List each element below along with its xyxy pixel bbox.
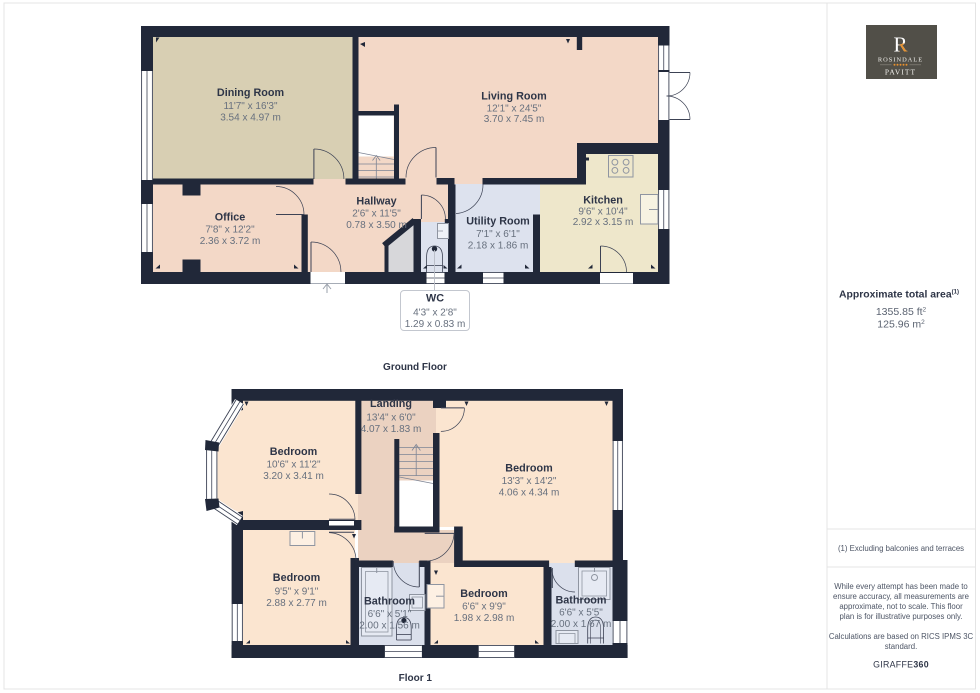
svg-text:3.70 x 7.45 m: 3.70 x 7.45 m bbox=[484, 114, 545, 125]
svg-text:Floor 1: Floor 1 bbox=[399, 673, 433, 684]
svg-text:13'3" x 14'2": 13'3" x 14'2" bbox=[502, 476, 557, 487]
svg-text:6'6" x 5'5": 6'6" x 5'5" bbox=[559, 608, 603, 619]
svg-text:Living Room: Living Room bbox=[481, 91, 546, 103]
svg-text:Office: Office bbox=[215, 212, 246, 224]
svg-text:approximate, not to scale. Thi: approximate, not to scale. This floor bbox=[839, 602, 963, 611]
svg-text:ensure accuracy, all measureme: ensure accuracy, all measurements are bbox=[833, 592, 969, 601]
svg-text:1355.85 ft2: 1355.85 ft2 bbox=[876, 306, 927, 318]
svg-text:2.00 x 1.56 m: 2.00 x 1.56 m bbox=[359, 621, 420, 632]
svg-text:11'7" x 16'3": 11'7" x 16'3" bbox=[223, 101, 278, 112]
svg-text:13'4" x 6'0": 13'4" x 6'0" bbox=[366, 413, 416, 424]
svg-text:WC: WC bbox=[426, 293, 444, 305]
svg-text:Bedroom: Bedroom bbox=[270, 446, 317, 458]
svg-text:Approximate total area(1): Approximate total area(1) bbox=[839, 290, 959, 301]
svg-text:Ground Floor: Ground Floor bbox=[383, 362, 447, 373]
svg-text:9'6" x 10'4": 9'6" x 10'4" bbox=[578, 207, 628, 218]
svg-text:Landing: Landing bbox=[370, 398, 412, 410]
svg-text:2.36 x 3.72 m: 2.36 x 3.72 m bbox=[200, 236, 261, 247]
svg-text:Kitchen: Kitchen bbox=[583, 195, 623, 207]
svg-text:Bedroom: Bedroom bbox=[460, 588, 507, 600]
svg-text:ROSINDALE: ROSINDALE bbox=[878, 57, 923, 64]
svg-text:3.20 x 3.41 m: 3.20 x 3.41 m bbox=[263, 471, 324, 482]
svg-text:Bathroom: Bathroom bbox=[364, 596, 415, 608]
svg-text:7'1" x 6'1": 7'1" x 6'1" bbox=[476, 229, 520, 240]
svg-text:Bedroom: Bedroom bbox=[273, 572, 320, 584]
svg-text:Hallway: Hallway bbox=[356, 196, 396, 208]
svg-text:Utility Room: Utility Room bbox=[466, 216, 530, 228]
svg-text:plan is for illustrative purpo: plan is for illustrative purposes only. bbox=[840, 612, 963, 621]
svg-text:Bedroom: Bedroom bbox=[505, 463, 552, 475]
svg-text:0.78 x 3.50 m: 0.78 x 3.50 m bbox=[346, 220, 407, 231]
svg-text:10'6" x 11'2": 10'6" x 11'2" bbox=[266, 460, 321, 471]
svg-text:Bathroom: Bathroom bbox=[556, 595, 607, 607]
svg-text:6'6" x 9'9": 6'6" x 9'9" bbox=[462, 602, 506, 613]
svg-text:Calculations are based on RICS: Calculations are based on RICS IPMS 3C bbox=[829, 632, 974, 641]
svg-text:4'3" x 2'8": 4'3" x 2'8" bbox=[413, 308, 457, 319]
svg-text:1.29 x 0.83 m: 1.29 x 0.83 m bbox=[405, 319, 466, 330]
svg-text:PAVITT: PAVITT bbox=[885, 68, 916, 77]
svg-text:2.88 x 2.77 m: 2.88 x 2.77 m bbox=[266, 598, 327, 609]
svg-text:6'6" x 5'1": 6'6" x 5'1" bbox=[368, 609, 412, 620]
svg-text:125.96 m2: 125.96 m2 bbox=[877, 319, 925, 331]
svg-text:3.54 x 4.97 m: 3.54 x 4.97 m bbox=[220, 113, 281, 124]
svg-text:While every attempt has been m: While every attempt has been made to bbox=[834, 582, 968, 591]
svg-text:4.07 x 1.83 m: 4.07 x 1.83 m bbox=[361, 424, 422, 435]
svg-text:2.92 x 3.15 m: 2.92 x 3.15 m bbox=[573, 217, 634, 228]
svg-text:Dining Room: Dining Room bbox=[217, 87, 284, 99]
svg-text:7'8" x 12'2": 7'8" x 12'2" bbox=[205, 225, 255, 236]
svg-text:2'6" x 11'5": 2'6" x 11'5" bbox=[352, 209, 401, 220]
svg-text:1.98 x 2.98 m: 1.98 x 2.98 m bbox=[454, 613, 515, 624]
svg-text:9'5" x 9'1": 9'5" x 9'1" bbox=[275, 587, 319, 598]
svg-text:12'1" x 24'5": 12'1" x 24'5" bbox=[487, 104, 542, 115]
svg-text:2.18 x 1.86 m: 2.18 x 1.86 m bbox=[468, 241, 529, 252]
svg-text:GIRAFFE360: GIRAFFE360 bbox=[873, 660, 929, 670]
svg-text:2.00 x 1.67 m: 2.00 x 1.67 m bbox=[551, 619, 612, 630]
svg-text:standard.: standard. bbox=[885, 642, 918, 651]
svg-text:4.06 x 4.34 m: 4.06 x 4.34 m bbox=[499, 488, 560, 499]
svg-text:(1) Excluding balconies and te: (1) Excluding balconies and terraces bbox=[838, 544, 964, 553]
